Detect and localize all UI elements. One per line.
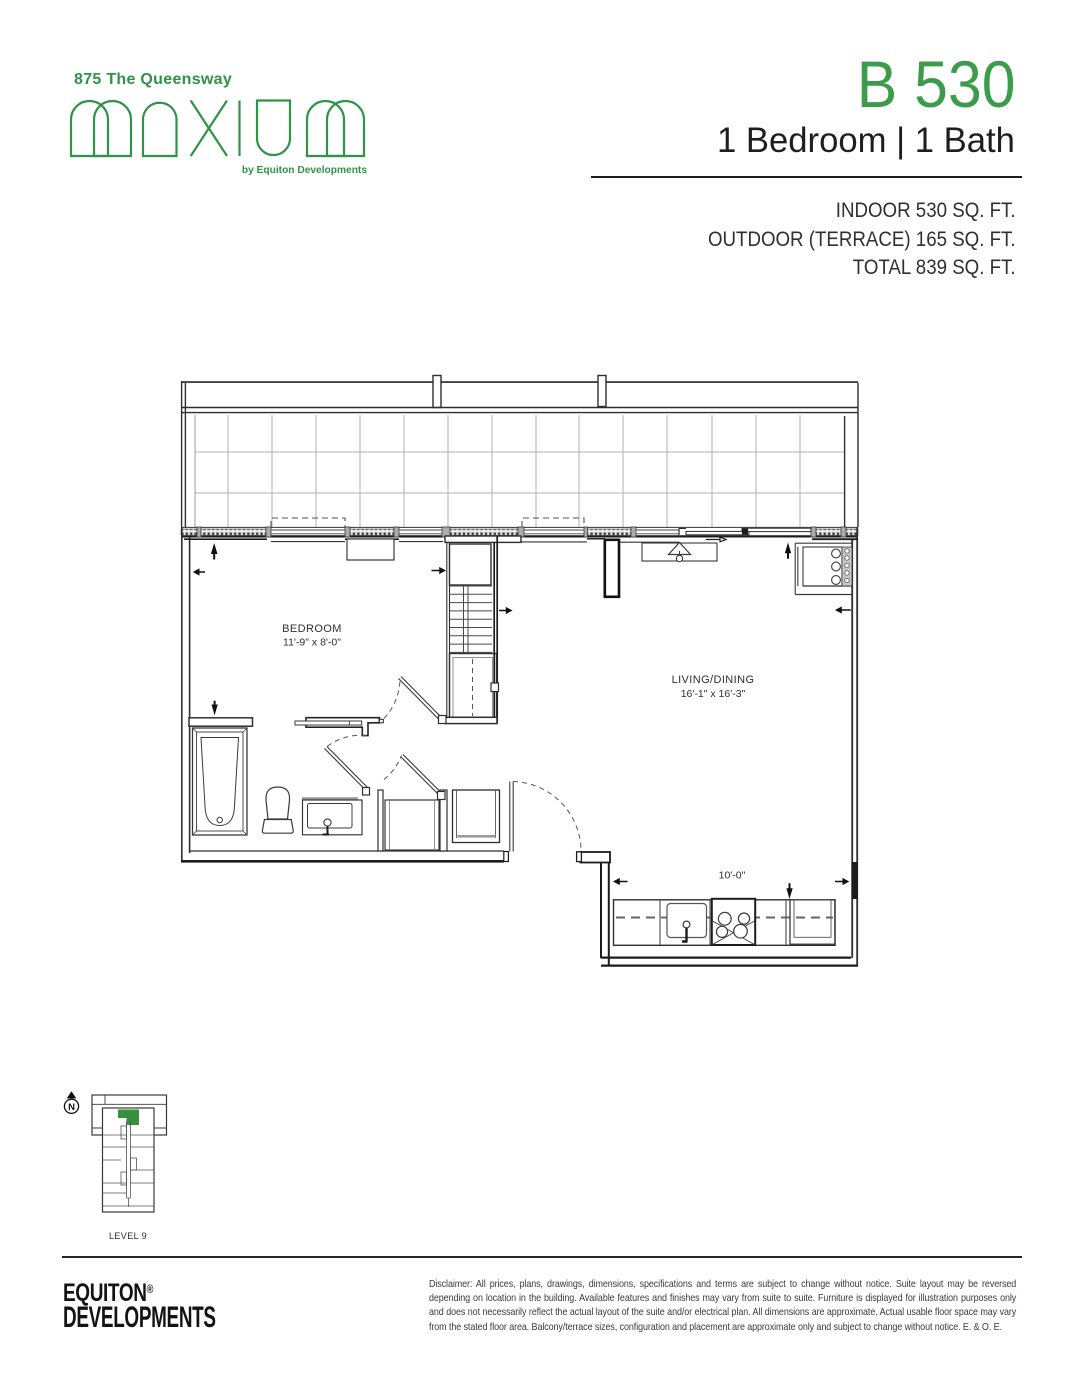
svg-text:LIVING/DINING: LIVING/DINING [672,674,755,686]
svg-text:BEDROOM: BEDROOM [282,623,342,635]
svg-text:11'-9" x 8'-0": 11'-9" x 8'-0" [283,637,341,649]
svg-text:N: N [68,1102,75,1113]
svg-text:16'-1" x 16'-3": 16'-1" x 16'-3" [681,688,746,700]
svg-text:10'-0": 10'-0" [719,870,746,882]
